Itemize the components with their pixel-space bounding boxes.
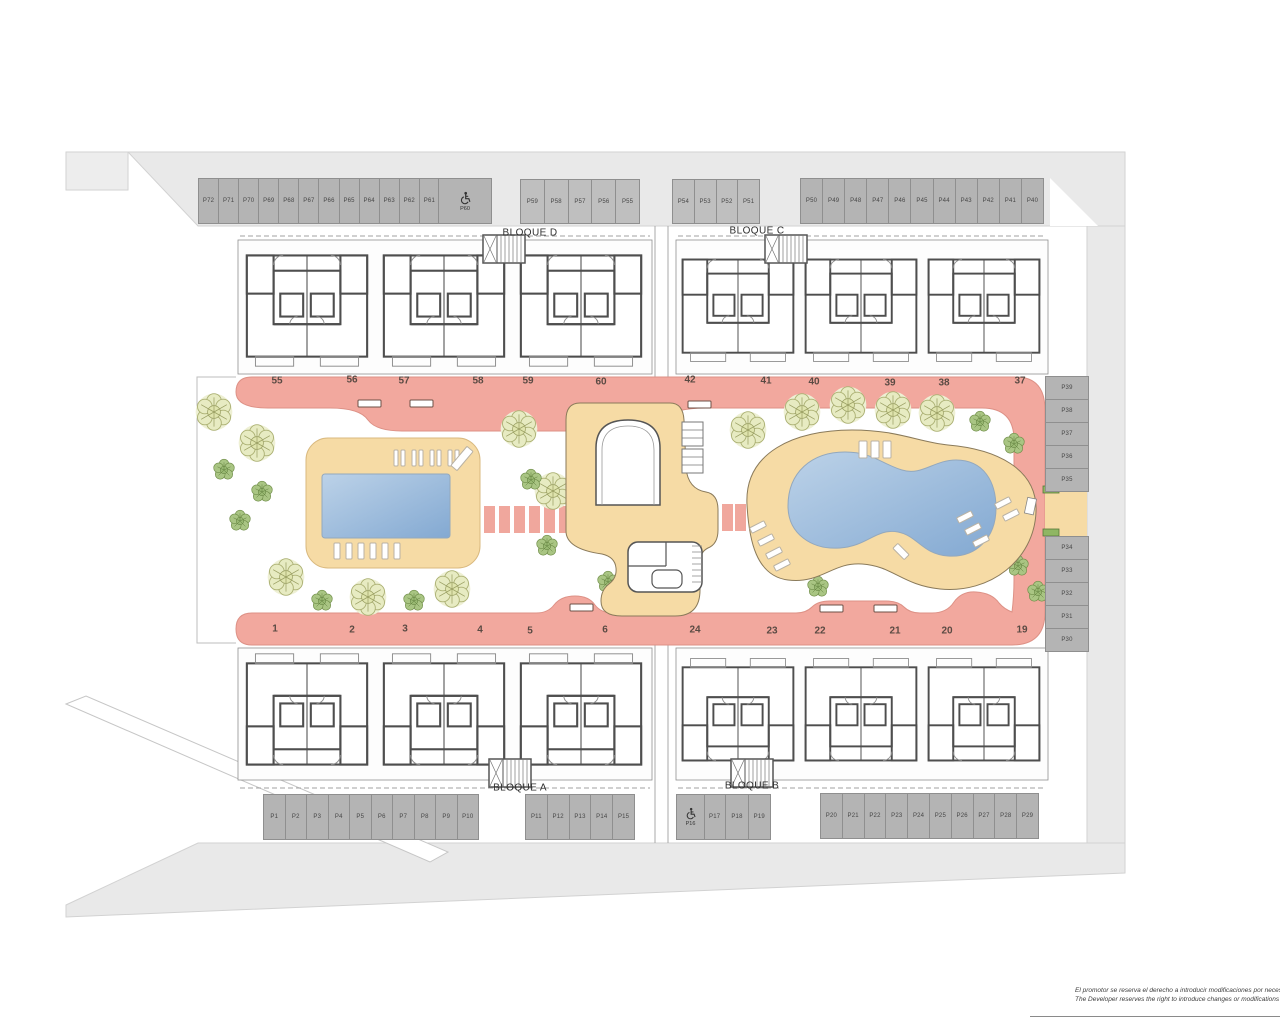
sunbed-icon bbox=[394, 450, 398, 466]
parking-space-accessible-p16: P16 bbox=[676, 794, 705, 840]
disclaimer-text: El promotor se reserva el derecho a intr… bbox=[1075, 986, 1280, 1004]
parking-space: P51 bbox=[738, 180, 759, 223]
parking-space: P26 bbox=[952, 794, 973, 838]
parking-space: P44 bbox=[934, 179, 955, 223]
sheet-rule bbox=[1030, 1016, 1280, 1017]
sunbed-icon bbox=[334, 543, 340, 559]
unit-number: 37 bbox=[1014, 376, 1025, 387]
parking-space-label: P60 bbox=[460, 206, 470, 212]
parking-space: P55 bbox=[616, 180, 639, 223]
parking-group-bottom-right: P20P21P22P23P24P25P26P27P28P29 bbox=[820, 793, 1039, 839]
sunbed-icon bbox=[394, 543, 400, 559]
parking-space: P71 bbox=[219, 179, 238, 223]
sunbed-icon bbox=[382, 543, 388, 559]
sunbed-icon bbox=[883, 441, 891, 458]
tree-icon bbox=[239, 425, 276, 462]
shrub-icon bbox=[521, 469, 542, 489]
shrub-icon bbox=[214, 459, 235, 479]
parking-space: P25 bbox=[930, 794, 951, 838]
parking-space: P24 bbox=[908, 794, 929, 838]
arch-pavilion bbox=[596, 420, 660, 505]
parking-space: P59 bbox=[521, 180, 544, 223]
parking-group-bottom-center: P17P18P19 bbox=[703, 794, 771, 840]
parking-space: P37 bbox=[1046, 423, 1088, 445]
sunbed-icon bbox=[437, 450, 441, 466]
services-building bbox=[628, 542, 702, 592]
unit-number: 23 bbox=[766, 626, 777, 637]
parking-space: P54 bbox=[673, 180, 694, 223]
unit-number: 22 bbox=[814, 626, 825, 637]
site-plan: P72P71P70P69P68P67P66P65P64P63P62P61P59P… bbox=[0, 0, 1280, 1024]
parking-space: P17 bbox=[704, 795, 725, 839]
sunbed-icon bbox=[412, 450, 416, 466]
parking-space: P52 bbox=[717, 180, 738, 223]
unit-number: 39 bbox=[884, 378, 895, 389]
wheelchair-icon bbox=[458, 191, 472, 205]
parking-space: P61 bbox=[420, 179, 439, 223]
unit-number: 60 bbox=[595, 377, 606, 388]
sunbed-icon bbox=[859, 441, 867, 458]
unit-number: 42 bbox=[684, 375, 695, 386]
parking-space: P23 bbox=[886, 794, 907, 838]
parking-space-accessible-p60: P60 bbox=[438, 178, 492, 224]
shrub-icon bbox=[537, 535, 558, 555]
shrub-icon bbox=[312, 590, 333, 610]
sunbed-icon bbox=[871, 441, 879, 458]
tree-icon bbox=[501, 411, 538, 448]
parking-space: P1 bbox=[264, 795, 285, 839]
parking-space: P57 bbox=[569, 180, 592, 223]
parking-space: P3 bbox=[307, 795, 328, 839]
parking-space: P9 bbox=[436, 795, 457, 839]
parking-space: P53 bbox=[695, 180, 716, 223]
parking-space: P15 bbox=[613, 795, 634, 839]
parking-space: P18 bbox=[726, 795, 747, 839]
parking-group-right-lower: P34P33P32P31P30 bbox=[1045, 536, 1089, 652]
parking-space: P6 bbox=[372, 795, 393, 839]
unit-number: 41 bbox=[760, 376, 771, 387]
sunbed-icon bbox=[346, 543, 352, 559]
parking-group-top-left: P72P71P70P69P68P67P66P65P64P63P62P61 bbox=[198, 178, 440, 224]
shrub-icon bbox=[230, 510, 251, 530]
tree-icon bbox=[919, 395, 956, 432]
block-label-b: BLOQUE B bbox=[725, 781, 779, 792]
parking-space: P2 bbox=[286, 795, 307, 839]
parking-group-top-mid: P59P58P57P56P55 bbox=[520, 179, 640, 224]
shrub-icon bbox=[808, 576, 829, 596]
parking-space: P69 bbox=[259, 179, 278, 223]
unit-number: 56 bbox=[346, 375, 357, 386]
unit-number: 20 bbox=[941, 626, 952, 637]
parking-space: P41 bbox=[1000, 179, 1021, 223]
wheelchair-icon bbox=[684, 807, 697, 820]
tree-icon bbox=[196, 394, 233, 431]
parking-space: P7 bbox=[393, 795, 414, 839]
parking-space: P45 bbox=[911, 179, 932, 223]
shrub-icon bbox=[404, 590, 425, 610]
unit-number: 3 bbox=[402, 624, 408, 635]
parking-space: P47 bbox=[867, 179, 888, 223]
parking-space: P11 bbox=[526, 795, 547, 839]
unit-number: 4 bbox=[477, 625, 483, 636]
parking-space: P19 bbox=[749, 795, 770, 839]
parking-group-top-right: P50P49P48P47P46P45P44P43P42P41P40 bbox=[800, 178, 1044, 224]
parking-space: P49 bbox=[823, 179, 844, 223]
block-label-a: BLOQUE A bbox=[493, 783, 547, 794]
tree-icon bbox=[350, 579, 387, 616]
parking-space: P8 bbox=[415, 795, 436, 839]
parking-space: P39 bbox=[1046, 377, 1088, 399]
parking-space: P32 bbox=[1046, 583, 1088, 605]
parking-space: P29 bbox=[1017, 794, 1038, 838]
tree-icon bbox=[830, 387, 867, 424]
parking-space: P21 bbox=[843, 794, 864, 838]
tree-icon bbox=[434, 571, 471, 608]
parking-space: P13 bbox=[570, 795, 591, 839]
unit-number: 5 bbox=[527, 626, 533, 637]
parking-space: P30 bbox=[1046, 629, 1088, 651]
parking-space: P68 bbox=[279, 179, 298, 223]
block-label-d: BLOQUE D bbox=[503, 228, 558, 239]
unit-number: 21 bbox=[889, 626, 900, 637]
parking-space: P31 bbox=[1046, 606, 1088, 628]
tree-icon bbox=[784, 394, 821, 431]
parking-group-bottom-left: P1P2P3P4P5P6P7P8P9P10 bbox=[263, 794, 479, 840]
unit-number: 57 bbox=[398, 376, 409, 387]
sunbed-icon bbox=[401, 450, 405, 466]
parking-space: P65 bbox=[340, 179, 359, 223]
unit-number: 2 bbox=[349, 625, 355, 636]
sunbed-icon bbox=[430, 450, 434, 466]
parking-space: P62 bbox=[400, 179, 419, 223]
parking-space: P70 bbox=[239, 179, 258, 223]
parking-space: P10 bbox=[458, 795, 479, 839]
parking-space: P43 bbox=[956, 179, 977, 223]
parking-space: P5 bbox=[350, 795, 371, 839]
parking-space: P36 bbox=[1046, 446, 1088, 468]
sunbed-icon bbox=[370, 543, 376, 559]
swimming-pool-rect bbox=[322, 474, 450, 538]
parking-space: P46 bbox=[889, 179, 910, 223]
unit-number: 55 bbox=[271, 376, 282, 387]
tree-icon bbox=[875, 392, 912, 429]
sunbed-icon bbox=[358, 543, 364, 559]
unit-number: 58 bbox=[472, 376, 483, 387]
parking-space: P34 bbox=[1046, 537, 1088, 559]
parking-space: P63 bbox=[380, 179, 399, 223]
unit-number: 40 bbox=[808, 377, 819, 388]
tree-icon bbox=[730, 412, 767, 449]
parking-space: P66 bbox=[319, 179, 338, 223]
disclaimer-line-en: The Developer reserves the right to intr… bbox=[1075, 995, 1280, 1004]
parking-space: P56 bbox=[592, 180, 615, 223]
parking-space: P22 bbox=[865, 794, 886, 838]
shrub-icon bbox=[252, 481, 273, 501]
site-plan-drawing bbox=[0, 0, 1280, 1024]
parking-space: P72 bbox=[199, 179, 218, 223]
parking-space: P38 bbox=[1046, 400, 1088, 422]
disclaimer-line-es: El promotor se reserva el derecho a intr… bbox=[1075, 986, 1280, 995]
parking-group-top-center: P54P53P52P51 bbox=[672, 179, 760, 224]
parking-space: P67 bbox=[299, 179, 318, 223]
parking-group-bottom-mid: P11P12P13P14P15 bbox=[525, 794, 635, 840]
unit-number: 38 bbox=[938, 378, 949, 389]
parking-space: P28 bbox=[995, 794, 1016, 838]
parking-space: P40 bbox=[1022, 179, 1043, 223]
parking-space: P27 bbox=[974, 794, 995, 838]
unit-number: 59 bbox=[522, 376, 533, 387]
sunbed-icon bbox=[419, 450, 423, 466]
unit-number: 24 bbox=[689, 625, 700, 636]
parking-space: P20 bbox=[821, 794, 842, 838]
sunbed-icon bbox=[448, 450, 452, 466]
parking-space: P50 bbox=[801, 179, 822, 223]
parking-space: P33 bbox=[1046, 560, 1088, 582]
parking-space: P4 bbox=[329, 795, 350, 839]
tree-icon bbox=[268, 559, 305, 596]
unit-number: 19 bbox=[1016, 625, 1027, 636]
block-label-c: BLOQUE C bbox=[730, 226, 785, 237]
parking-space-label: P16 bbox=[686, 821, 696, 827]
parking-space: P48 bbox=[845, 179, 866, 223]
shrub-icon bbox=[970, 411, 991, 431]
parking-space: P58 bbox=[545, 180, 568, 223]
parking-space: P42 bbox=[978, 179, 999, 223]
parking-space: P14 bbox=[591, 795, 612, 839]
parking-space: P35 bbox=[1046, 469, 1088, 491]
unit-number: 1 bbox=[272, 624, 278, 635]
unit-number: 6 bbox=[602, 625, 608, 636]
parking-space: P64 bbox=[360, 179, 379, 223]
parking-space: P12 bbox=[548, 795, 569, 839]
parking-group-right-upper: P39P38P37P36P35 bbox=[1045, 376, 1089, 492]
